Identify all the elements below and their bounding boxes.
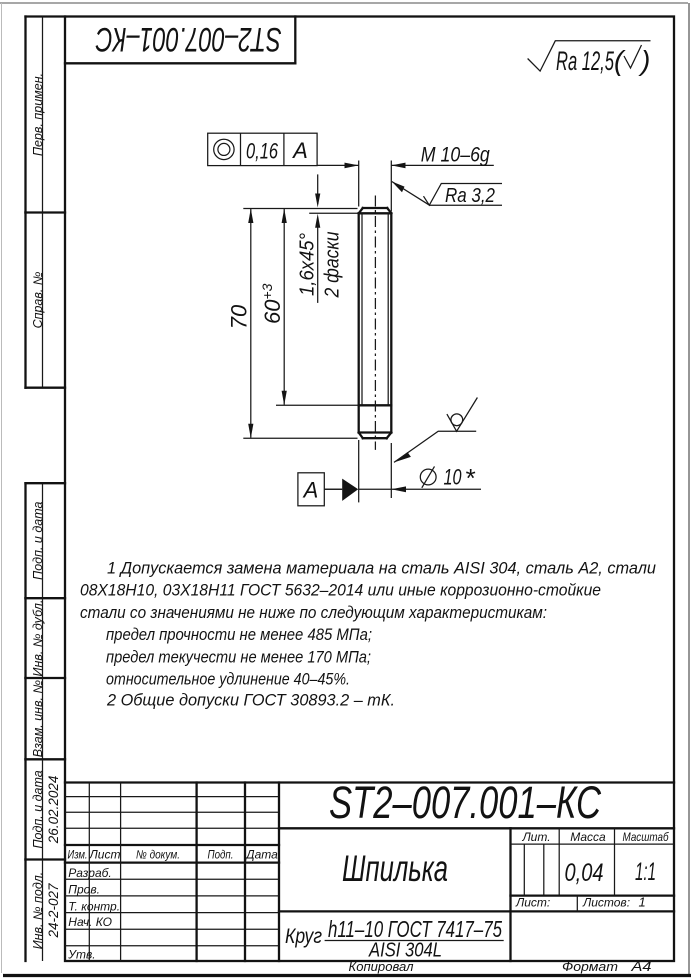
svg-text:h11–10 ГОСТ 7417–75: h11–10 ГОСТ 7417–75 xyxy=(328,916,502,942)
svg-text:Лит.: Лит. xyxy=(521,830,550,844)
svg-text:2 Общие допуски ГОСТ 30893.2 –: 2 Общие допуски ГОСТ 30893.2 – тК. xyxy=(106,691,395,710)
svg-text:ST2–007.001–КС: ST2–007.001–КС xyxy=(95,20,282,58)
svg-text:10: 10 xyxy=(444,465,463,490)
svg-text:Пров.: Пров. xyxy=(68,882,100,896)
svg-text:Ra 3,2: Ra 3,2 xyxy=(445,185,495,207)
svg-text:Перв. примен.: Перв. примен. xyxy=(31,73,45,156)
svg-text:60+3: 60+3 xyxy=(259,283,285,324)
svg-text:Листов:: Листов: xyxy=(582,895,630,909)
svg-text:Лист: Лист xyxy=(89,848,121,862)
svg-text:70: 70 xyxy=(227,304,252,329)
svg-text:предел текучести не менее 170: предел текучести не менее 170 МПа; xyxy=(106,647,371,666)
svg-text:0,04: 0,04 xyxy=(565,859,604,887)
svg-text:Взам. инв. №: Взам. инв. № xyxy=(31,679,45,757)
svg-text:Подп. и дата: Подп. и дата xyxy=(31,502,45,580)
svg-text:Копировал: Копировал xyxy=(349,959,415,974)
svg-text:Справ. №: Справ. № xyxy=(31,271,45,328)
svg-text:Масштаб: Масштаб xyxy=(623,830,670,844)
svg-text:относительное удлинение 40–45%: относительное удлинение 40–45%. xyxy=(106,670,350,689)
svg-text:24-2-027: 24-2-027 xyxy=(46,883,61,939)
svg-text:1:1: 1:1 xyxy=(635,858,656,886)
svg-text:А: А xyxy=(302,478,319,503)
svg-text:1: 1 xyxy=(639,895,646,910)
svg-text:ST2–007.001–КС: ST2–007.001–КС xyxy=(329,777,601,828)
svg-text:Разраб.: Разраб. xyxy=(68,866,111,880)
svg-text:26.02.2024: 26.02.2024 xyxy=(46,776,61,845)
svg-text:Шпилька: Шпилька xyxy=(342,848,448,889)
svg-text:Нач. КО: Нач. КО xyxy=(68,915,112,929)
svg-text:Изм.: Изм. xyxy=(68,848,88,862)
svg-text:Формат: Формат xyxy=(562,959,618,974)
svg-text:0,16: 0,16 xyxy=(246,139,279,164)
svg-text:2 фаски: 2 фаски xyxy=(322,232,344,299)
svg-text:08Х18Н10, 03Х18Н11 ГОСТ 5632–2: 08Х18Н10, 03Х18Н11 ГОСТ 5632–2014 или ин… xyxy=(80,581,601,600)
svg-text:Подп.: Подп. xyxy=(208,848,234,862)
svg-text:М 10–6g: М 10–6g xyxy=(421,144,490,167)
svg-text:А: А xyxy=(291,138,308,163)
svg-text:Масса: Масса xyxy=(570,830,606,844)
svg-text:Т. контр.: Т. контр. xyxy=(68,899,120,913)
svg-text:Инв. № дубл.: Инв. № дубл. xyxy=(31,600,45,677)
svg-text:Подп. и дата: Подп. и дата xyxy=(31,770,45,848)
svg-text:Лист:: Лист: xyxy=(515,895,550,909)
svg-text:1,6х45°: 1,6х45° xyxy=(297,233,319,296)
svg-text:А4: А4 xyxy=(630,959,651,974)
svg-text:№ докум.: № докум. xyxy=(136,848,180,862)
svg-text:Ra 12,5: Ra 12,5 xyxy=(556,46,615,76)
svg-text:1 Допускается замена материала: 1 Допускается замена материала на сталь … xyxy=(107,559,657,578)
svg-text:Инв. № подл.: Инв. № подл. xyxy=(31,872,45,950)
svg-text:(: ( xyxy=(614,45,626,76)
svg-text:Дата: Дата xyxy=(244,848,278,862)
svg-text:Круг: Круг xyxy=(285,925,322,948)
svg-text:предел прочности не менее 485: предел прочности не менее 485 МПа; xyxy=(106,625,372,644)
svg-text:стали со значениями не ниже по: стали со значениями не ниже по следующим… xyxy=(80,603,547,622)
svg-text:Утв.: Утв. xyxy=(67,948,95,962)
svg-text:*: * xyxy=(465,463,476,493)
